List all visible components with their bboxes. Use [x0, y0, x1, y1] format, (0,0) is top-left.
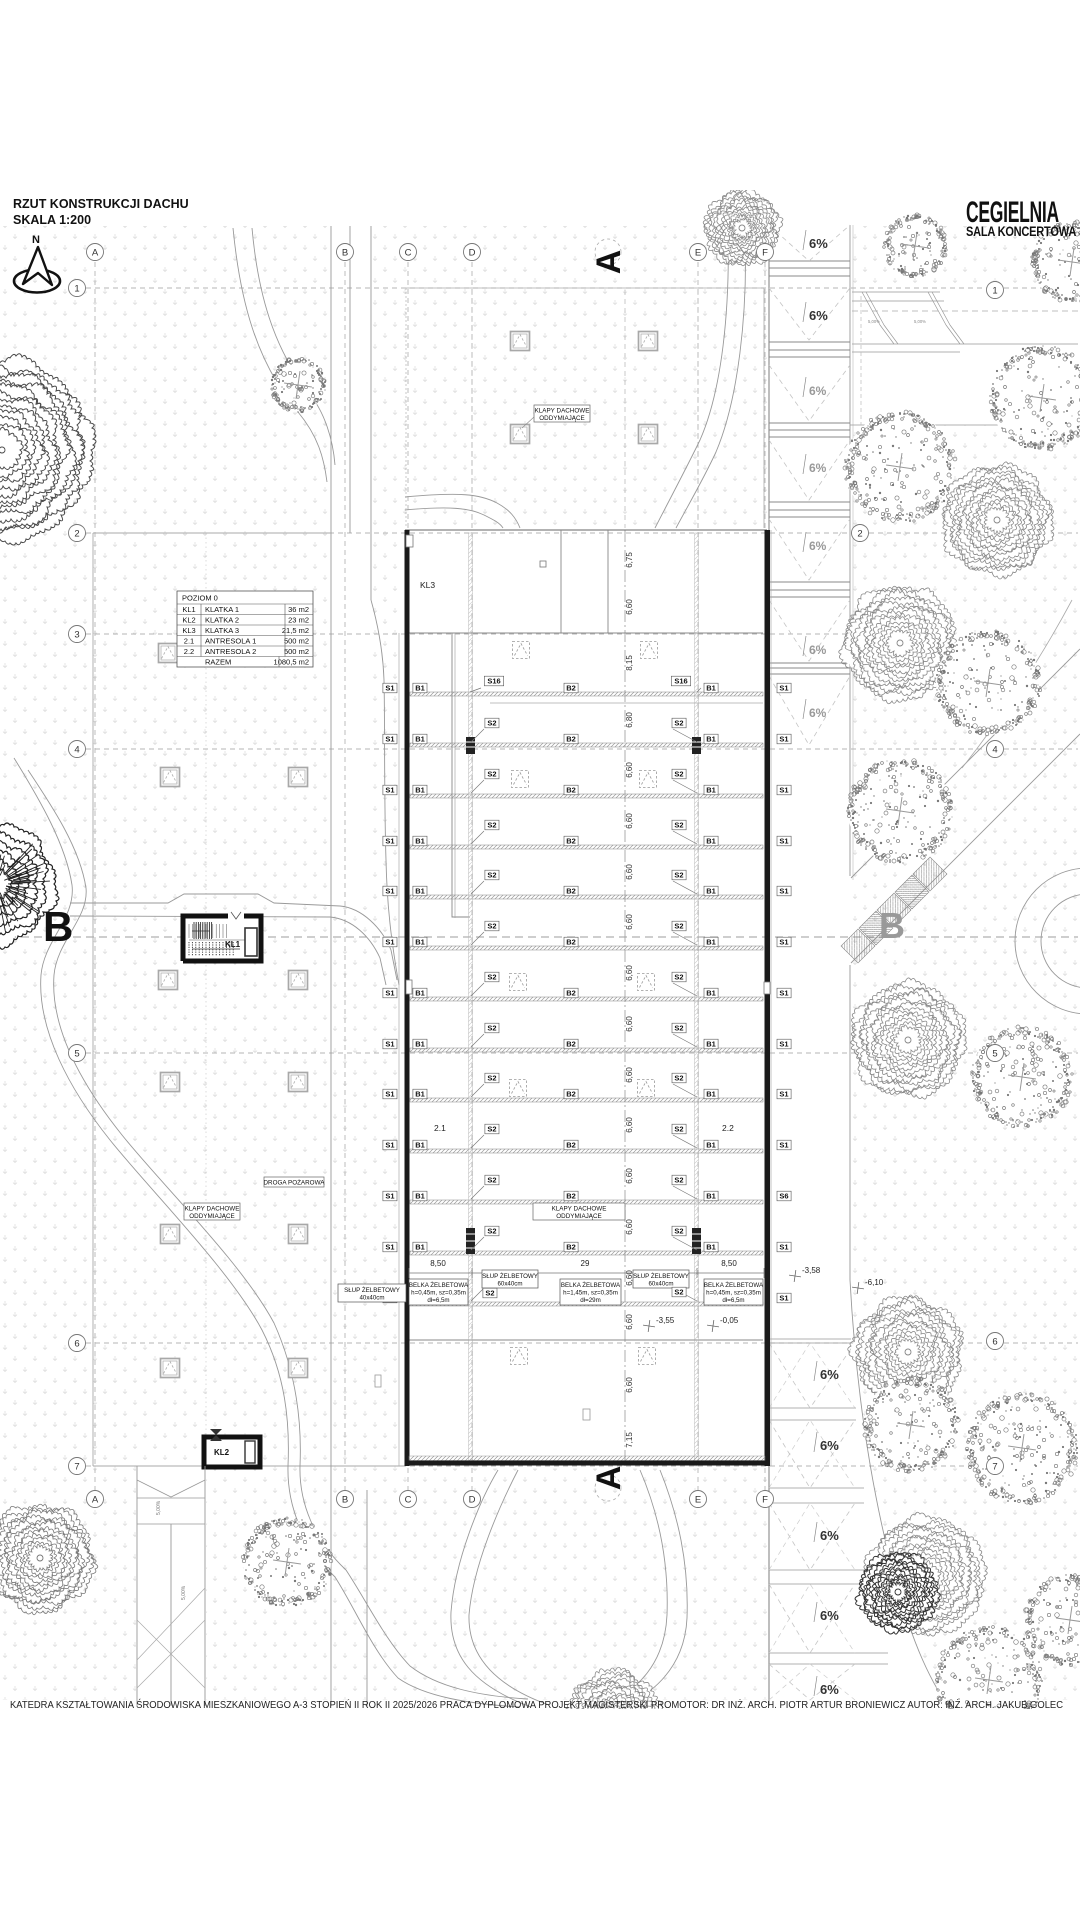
svg-text:6%: 6% — [809, 706, 827, 720]
svg-text:S1: S1 — [779, 938, 788, 947]
svg-text:ANTRESOLA 1: ANTRESOLA 1 — [205, 637, 256, 646]
svg-text:dł=29m: dł=29m — [580, 1297, 600, 1304]
svg-text:S2: S2 — [487, 1024, 496, 1033]
svg-text:S2: S2 — [487, 1176, 496, 1185]
svg-text:SKALA 1:200: SKALA 1:200 — [13, 213, 91, 227]
svg-text:6,60: 6,60 — [625, 1067, 634, 1083]
svg-text:S2: S2 — [487, 922, 496, 931]
svg-text:B2: B2 — [566, 1141, 576, 1150]
svg-text:S1: S1 — [779, 1294, 788, 1303]
svg-text:-3,55: -3,55 — [656, 1316, 675, 1325]
svg-text:60x40cm: 60x40cm — [497, 1281, 522, 1288]
svg-text:2.1: 2.1 — [434, 1123, 446, 1133]
svg-text:B1: B1 — [415, 735, 425, 744]
svg-text:E: E — [695, 1494, 701, 1505]
svg-text:C: C — [405, 247, 412, 258]
svg-text:8,50: 8,50 — [721, 1259, 737, 1268]
svg-text:5: 5 — [992, 1048, 997, 1059]
svg-text:B1: B1 — [415, 1040, 425, 1049]
svg-text:B2: B2 — [566, 786, 576, 795]
svg-text:B1: B1 — [706, 1090, 716, 1099]
svg-text:B1: B1 — [415, 1090, 425, 1099]
svg-text:6%: 6% — [809, 461, 827, 475]
svg-text:S1: S1 — [385, 786, 394, 795]
svg-text:B2: B2 — [566, 1040, 576, 1049]
svg-text:S1: S1 — [779, 1090, 788, 1099]
svg-text:-6,10: -6,10 — [865, 1278, 884, 1287]
svg-text:B1: B1 — [415, 1141, 425, 1150]
svg-text:B1: B1 — [706, 1141, 716, 1150]
svg-text:A: A — [92, 1494, 99, 1505]
svg-text:S1: S1 — [779, 989, 788, 998]
svg-text:KL2: KL2 — [182, 616, 195, 625]
svg-text:B1: B1 — [706, 887, 716, 896]
svg-text:S2: S2 — [487, 719, 496, 728]
svg-text:36 m2: 36 m2 — [288, 605, 309, 614]
svg-text:B1: B1 — [415, 837, 425, 846]
svg-text:6,60: 6,60 — [625, 1219, 634, 1235]
svg-text:SALA KONCERTOWA: SALA KONCERTOWA — [966, 224, 1076, 240]
svg-text:6%: 6% — [820, 1608, 839, 1623]
svg-text:4: 4 — [992, 744, 997, 755]
svg-text:1: 1 — [992, 285, 997, 296]
svg-text:5,00%: 5,00% — [181, 1585, 187, 1600]
svg-text:KL3: KL3 — [420, 580, 435, 590]
svg-text:RZUT KONSTRUKCJI DACHU: RZUT KONSTRUKCJI DACHU — [13, 197, 189, 211]
svg-text:B2: B2 — [566, 684, 576, 693]
svg-text:SŁUP ŻELBETOWY: SŁUP ŻELBETOWY — [482, 1273, 538, 1280]
svg-text:6,80: 6,80 — [625, 712, 634, 728]
svg-text:B2: B2 — [566, 837, 576, 846]
svg-text:6,60: 6,60 — [625, 864, 634, 880]
svg-text:500 m2: 500 m2 — [284, 647, 309, 656]
svg-text:S2: S2 — [485, 1289, 494, 1298]
svg-text:S2: S2 — [487, 1125, 496, 1134]
svg-text:B1: B1 — [706, 735, 716, 744]
svg-text:6%: 6% — [820, 1367, 839, 1382]
svg-text:6,60: 6,60 — [625, 914, 634, 930]
svg-text:KL1: KL1 — [225, 940, 241, 949]
svg-text:S2: S2 — [674, 1288, 683, 1297]
svg-text:BELKA ŻELBETOWA: BELKA ŻELBETOWA — [561, 1282, 621, 1289]
svg-text:S2: S2 — [674, 922, 683, 931]
svg-text:ANTRESOLA 2: ANTRESOLA 2 — [205, 647, 256, 656]
svg-text:6%: 6% — [809, 539, 827, 553]
svg-text:6,60: 6,60 — [625, 762, 634, 778]
svg-text:DROGA POŻAROWA: DROGA POŻAROWA — [264, 1178, 326, 1187]
svg-text:S2: S2 — [674, 1125, 683, 1134]
svg-text:KLATKA 2: KLATKA 2 — [205, 616, 239, 625]
svg-text:S6: S6 — [779, 1192, 788, 1201]
svg-text:21,5 m2: 21,5 m2 — [282, 626, 309, 635]
svg-text:B1: B1 — [706, 684, 716, 693]
svg-text:5,00%: 5,00% — [868, 319, 880, 324]
svg-text:F: F — [762, 1494, 768, 1505]
svg-text:S2: S2 — [674, 1074, 683, 1083]
svg-text:23 m2: 23 m2 — [288, 616, 309, 625]
svg-text:1: 1 — [74, 283, 79, 294]
svg-text:S2: S2 — [674, 1024, 683, 1033]
svg-text:6: 6 — [992, 1336, 997, 1347]
svg-text:S2: S2 — [487, 770, 496, 779]
svg-text:S1: S1 — [385, 989, 394, 998]
svg-text:B1: B1 — [415, 989, 425, 998]
svg-text:B2: B2 — [566, 887, 576, 896]
svg-text:KL1: KL1 — [182, 605, 195, 614]
svg-text:B1: B1 — [706, 989, 716, 998]
svg-text:500 m2: 500 m2 — [284, 637, 309, 646]
svg-text:B1: B1 — [706, 1040, 716, 1049]
svg-text:29: 29 — [581, 1259, 590, 1268]
svg-text:S1: S1 — [779, 837, 788, 846]
svg-text:S1: S1 — [779, 1243, 788, 1252]
svg-text:6,60: 6,60 — [625, 1314, 634, 1330]
svg-text:2: 2 — [74, 528, 79, 539]
svg-text:6%: 6% — [809, 236, 828, 251]
svg-text:B: B — [342, 1494, 348, 1505]
svg-text:6,60: 6,60 — [625, 965, 634, 981]
svg-text:B1: B1 — [706, 837, 716, 846]
svg-text:S1: S1 — [385, 684, 394, 693]
svg-text:KLAPY DACHOWE: KLAPY DACHOWE — [535, 408, 590, 415]
svg-text:B1: B1 — [415, 887, 425, 896]
svg-text:60x40cm: 60x40cm — [648, 1281, 673, 1288]
svg-text:KLATKA 1: KLATKA 1 — [205, 605, 239, 614]
svg-text:S1: S1 — [779, 1040, 788, 1049]
svg-text:S1: S1 — [385, 1090, 394, 1099]
svg-text:2.2: 2.2 — [722, 1123, 734, 1133]
svg-text:5,00%: 5,00% — [914, 319, 926, 324]
svg-text:2.2: 2.2 — [184, 647, 194, 656]
svg-text:S2: S2 — [674, 821, 683, 830]
svg-text:B1: B1 — [415, 786, 425, 795]
svg-text:SŁUP ŻELBETOWY: SŁUP ŻELBETOWY — [344, 1287, 400, 1294]
svg-text:6,60: 6,60 — [625, 813, 634, 829]
svg-text:S1: S1 — [779, 684, 788, 693]
svg-text:KLAPY DACHOWE: KLAPY DACHOWE — [185, 1206, 240, 1213]
svg-text:S1: S1 — [779, 1141, 788, 1150]
svg-text:A: A — [590, 1466, 628, 1491]
svg-text:-0,05: -0,05 — [720, 1316, 739, 1325]
svg-text:B2: B2 — [566, 735, 576, 744]
svg-text:B1: B1 — [415, 684, 425, 693]
svg-text:B: B — [879, 905, 905, 946]
svg-text:6%: 6% — [820, 1438, 839, 1453]
svg-text:S2: S2 — [674, 1176, 683, 1185]
svg-text:S2: S2 — [674, 719, 683, 728]
svg-text:6,60: 6,60 — [625, 1117, 634, 1133]
svg-text:KATEDRA KSZTAŁTOWANIA ŚRODOWIS: KATEDRA KSZTAŁTOWANIA ŚRODOWISKA MIESZKA… — [10, 1698, 1063, 1711]
svg-text:B2: B2 — [566, 1192, 576, 1201]
svg-text:S2: S2 — [674, 871, 683, 880]
svg-text:8,50: 8,50 — [430, 1259, 446, 1268]
svg-text:h=0,45m, sz=0,35m: h=0,45m, sz=0,35m — [706, 1290, 761, 1297]
svg-text:S2: S2 — [487, 973, 496, 982]
svg-text:8,15: 8,15 — [625, 655, 634, 671]
svg-text:N: N — [32, 234, 40, 246]
svg-text:S2: S2 — [487, 1227, 496, 1236]
svg-text:B2: B2 — [566, 938, 576, 947]
svg-text:B2: B2 — [566, 1243, 576, 1252]
svg-text:S1: S1 — [779, 887, 788, 896]
svg-text:dł=6,5m: dł=6,5m — [427, 1297, 449, 1304]
svg-text:h=0,45m, sz=0,35m: h=0,45m, sz=0,35m — [411, 1290, 466, 1297]
svg-text:dł=6,5m: dł=6,5m — [722, 1297, 744, 1304]
svg-text:ODDYMIAJĄCE: ODDYMIAJĄCE — [189, 1213, 234, 1220]
svg-text:A: A — [92, 247, 99, 258]
svg-text:h=1,45m, sz=0,35m: h=1,45m, sz=0,35m — [563, 1290, 618, 1297]
svg-text:B1: B1 — [415, 1192, 425, 1201]
svg-text:5: 5 — [74, 1048, 79, 1059]
svg-text:6: 6 — [74, 1338, 79, 1349]
svg-text:6,60: 6,60 — [625, 1016, 634, 1032]
svg-text:S1: S1 — [385, 735, 394, 744]
svg-text:6%: 6% — [820, 1682, 839, 1697]
svg-text:B1: B1 — [415, 1243, 425, 1252]
svg-text:S1: S1 — [385, 1040, 394, 1049]
svg-text:RAZEM: RAZEM — [205, 658, 231, 667]
svg-text:-3,58: -3,58 — [802, 1266, 821, 1275]
svg-text:S1: S1 — [779, 786, 788, 795]
svg-text:S2: S2 — [674, 973, 683, 982]
svg-text:S2: S2 — [487, 871, 496, 880]
svg-text:BELKA ŻELBETOWA: BELKA ŻELBETOWA — [409, 1282, 469, 1289]
svg-text:6,60: 6,60 — [625, 599, 634, 615]
svg-text:F: F — [762, 247, 768, 258]
svg-text:7: 7 — [74, 1461, 79, 1472]
svg-text:S2: S2 — [487, 1074, 496, 1083]
svg-text:S2: S2 — [674, 770, 683, 779]
svg-text:E: E — [695, 247, 701, 258]
svg-text:S1: S1 — [385, 837, 394, 846]
svg-text:KL2: KL2 — [214, 1448, 230, 1457]
svg-text:B1: B1 — [706, 938, 716, 947]
svg-text:B: B — [342, 247, 348, 258]
svg-text:S1: S1 — [385, 1141, 394, 1150]
svg-text:B: B — [43, 903, 73, 950]
svg-text:S1: S1 — [385, 938, 394, 947]
svg-text:6,60: 6,60 — [625, 1377, 634, 1393]
svg-text:5,00%: 5,00% — [156, 1500, 162, 1515]
svg-text:S1: S1 — [779, 735, 788, 744]
svg-text:S2: S2 — [674, 1227, 683, 1236]
svg-text:6%: 6% — [809, 308, 828, 323]
svg-text:POZIOM 0: POZIOM 0 — [182, 594, 218, 603]
svg-text:ODDYMIAJĄCE: ODDYMIAJĄCE — [556, 1213, 601, 1220]
svg-text:BELKA ŻELBETOWA: BELKA ŻELBETOWA — [704, 1282, 764, 1289]
svg-text:ODDYMIAJĄCE: ODDYMIAJĄCE — [539, 415, 584, 422]
svg-text:6%: 6% — [809, 643, 827, 657]
svg-text:4: 4 — [74, 744, 79, 755]
svg-text:B1: B1 — [706, 786, 716, 795]
svg-text:D: D — [469, 247, 476, 258]
svg-text:2.1: 2.1 — [184, 637, 194, 646]
svg-text:A: A — [590, 250, 628, 275]
svg-text:6%: 6% — [809, 384, 827, 398]
svg-text:S16: S16 — [674, 677, 687, 686]
svg-text:C: C — [405, 1494, 412, 1505]
svg-text:40x40cm: 40x40cm — [359, 1295, 384, 1302]
svg-text:S1: S1 — [385, 887, 394, 896]
svg-text:B1: B1 — [706, 1243, 716, 1252]
svg-text:B1: B1 — [415, 938, 425, 947]
svg-text:D: D — [469, 1494, 476, 1505]
svg-text:KL3: KL3 — [182, 626, 195, 635]
svg-text:S1: S1 — [385, 1192, 394, 1201]
svg-text:B2: B2 — [566, 989, 576, 998]
svg-text:KLATKA 3: KLATKA 3 — [205, 626, 239, 635]
svg-text:S2: S2 — [487, 821, 496, 830]
svg-text:3: 3 — [74, 629, 79, 640]
svg-text:7: 7 — [992, 1461, 997, 1472]
svg-text:B2: B2 — [566, 1090, 576, 1099]
svg-text:B1: B1 — [706, 1192, 716, 1201]
svg-text:6,60: 6,60 — [625, 1168, 634, 1184]
svg-text:6,75: 6,75 — [625, 552, 634, 568]
svg-text:6%: 6% — [820, 1528, 839, 1543]
svg-text:SŁUP ŻELBETOWY: SŁUP ŻELBETOWY — [633, 1273, 689, 1280]
svg-text:2: 2 — [857, 528, 862, 539]
svg-text:S16: S16 — [487, 677, 500, 686]
svg-text:KLAPY DACHOWE: KLAPY DACHOWE — [552, 1206, 607, 1213]
svg-text:S1: S1 — [385, 1243, 394, 1252]
svg-text:7,15: 7,15 — [625, 1432, 634, 1448]
